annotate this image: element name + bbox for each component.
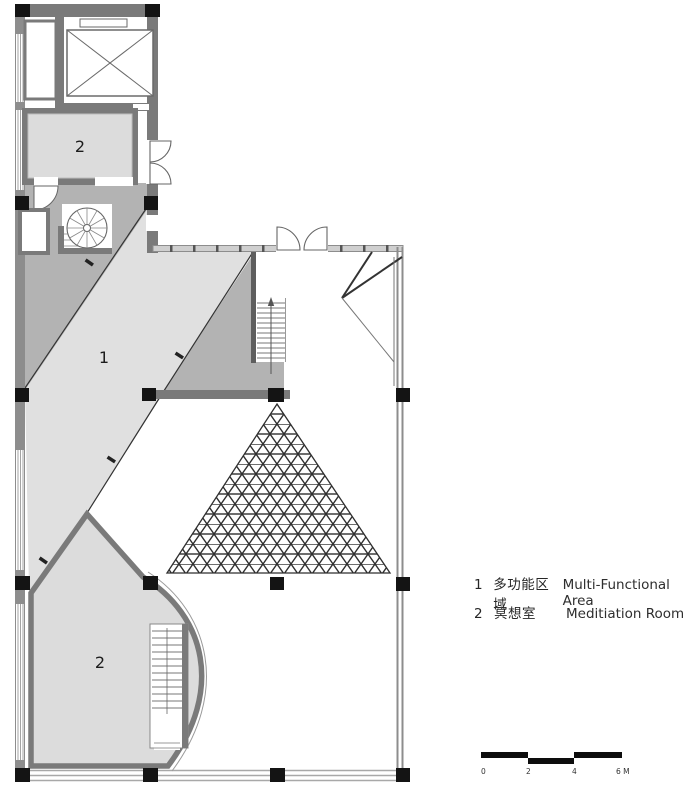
- room2-top-number-label: 2: [75, 137, 85, 156]
- floor-plan-drawing: 1 2 2: [0, 0, 700, 791]
- triangular-lattice: [160, 400, 400, 578]
- storage-room: [20, 210, 48, 253]
- legend-label-zh: 冥想室: [494, 602, 566, 622]
- scale-bar-segment: [481, 752, 528, 758]
- spiral-staircase: [58, 204, 112, 254]
- service-room: [25, 21, 56, 99]
- stair-room2: [150, 624, 188, 750]
- legend-number: 1: [474, 577, 493, 593]
- scale-bar-segments: [481, 752, 622, 765]
- legend-row-meditation: 2 冥想室 Meditiation Room: [474, 602, 700, 631]
- scale-tick-label: 4: [572, 767, 577, 776]
- room2-bottom-number-label: 2: [95, 653, 105, 672]
- scale-bar: 0 2 4 6 M: [481, 752, 631, 775]
- legend-number: 2: [474, 606, 494, 622]
- top-wall: [15, 4, 160, 17]
- elevator: [55, 17, 157, 111]
- legend-row-multifunctional: 1 多功能区域 Multi-Functional Area: [474, 573, 700, 602]
- legend: 1 多功能区域 Multi-Functional Area 2 冥想室 Medi…: [474, 573, 700, 631]
- elevator-counterweight: [80, 19, 127, 27]
- right-wall: [398, 247, 403, 771]
- wall-opening: [146, 215, 159, 231]
- area1-number-label: 1: [99, 348, 109, 367]
- legend-label-en: Multi-Functional Area: [563, 577, 700, 609]
- scale-tick-label: 0: [481, 767, 486, 776]
- scale-bar-ticks: 0 2 4 6 M: [481, 765, 631, 775]
- bottom-wall: [15, 771, 404, 781]
- floor-plan-page: { "plan": { "area1_label": "1", "room2_t…: [0, 0, 700, 791]
- folding-partition: [342, 252, 402, 386]
- scale-bar-segment: [574, 752, 622, 758]
- scale-tick-label: 2: [526, 767, 531, 776]
- stair-main-hall: [251, 252, 286, 374]
- scale-tick-label: 6 M: [616, 767, 630, 776]
- scale-bar-segment: [528, 758, 574, 764]
- legend-label-en: Meditiation Room: [566, 606, 684, 622]
